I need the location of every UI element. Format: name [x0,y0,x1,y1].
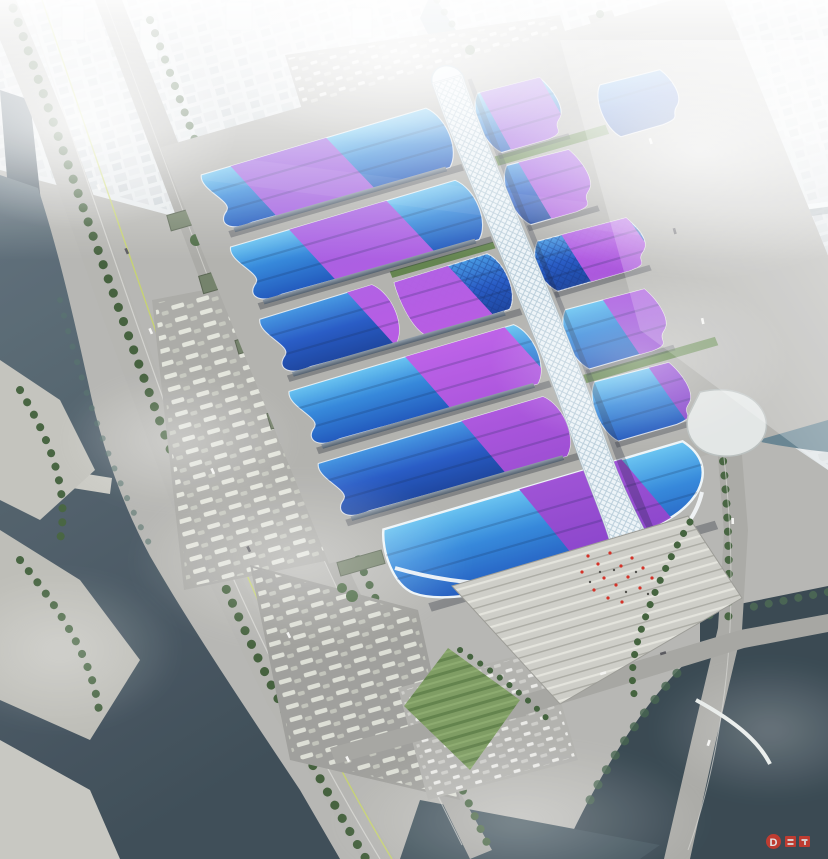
watermark: D [766,834,810,849]
watermark-letter: D [770,837,778,849]
rendering-canvas: D [0,0,828,859]
aerial-rendering: D [0,0,828,859]
